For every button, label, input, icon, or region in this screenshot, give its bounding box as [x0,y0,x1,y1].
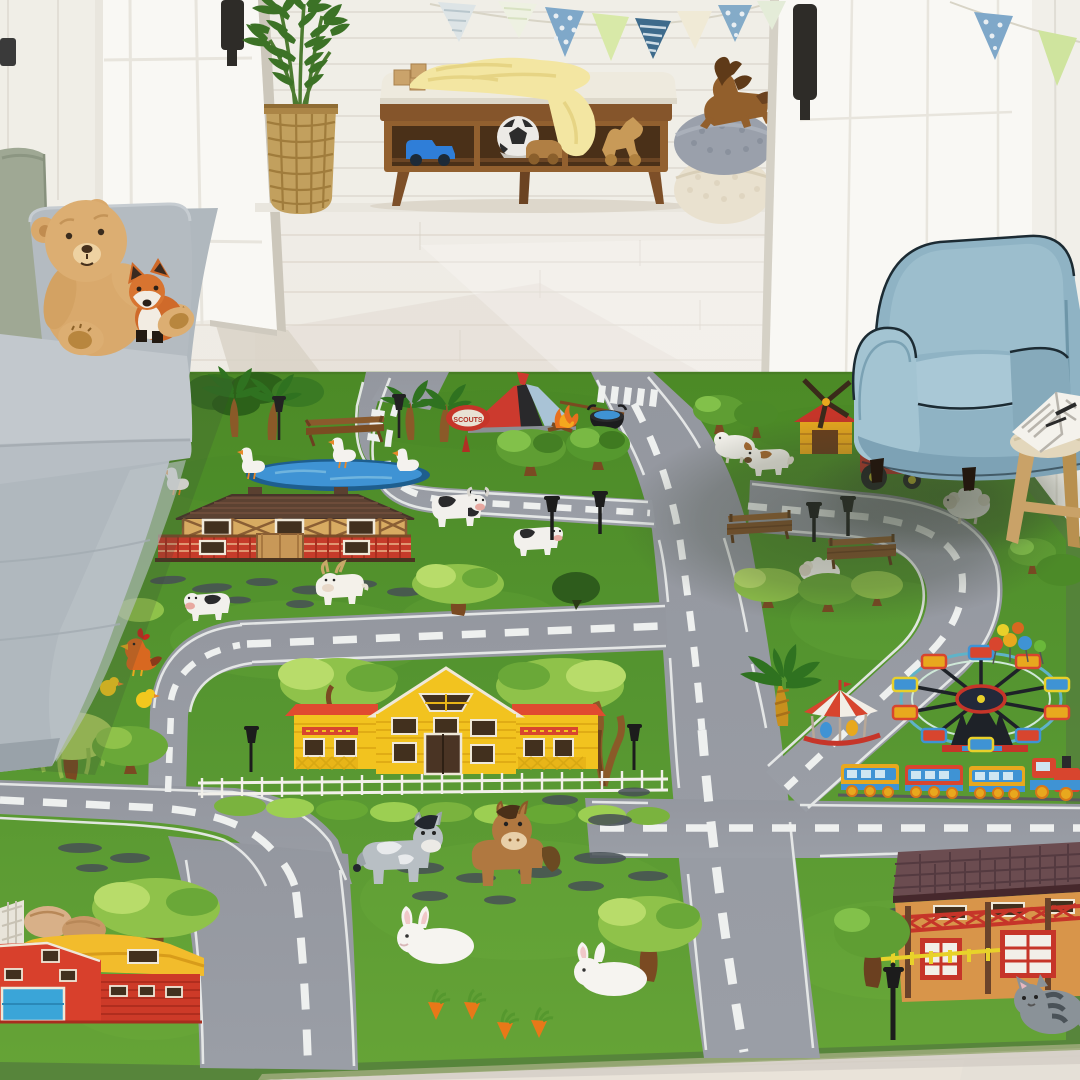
svg-text:SCOUTS: SCOUTS [453,417,483,424]
